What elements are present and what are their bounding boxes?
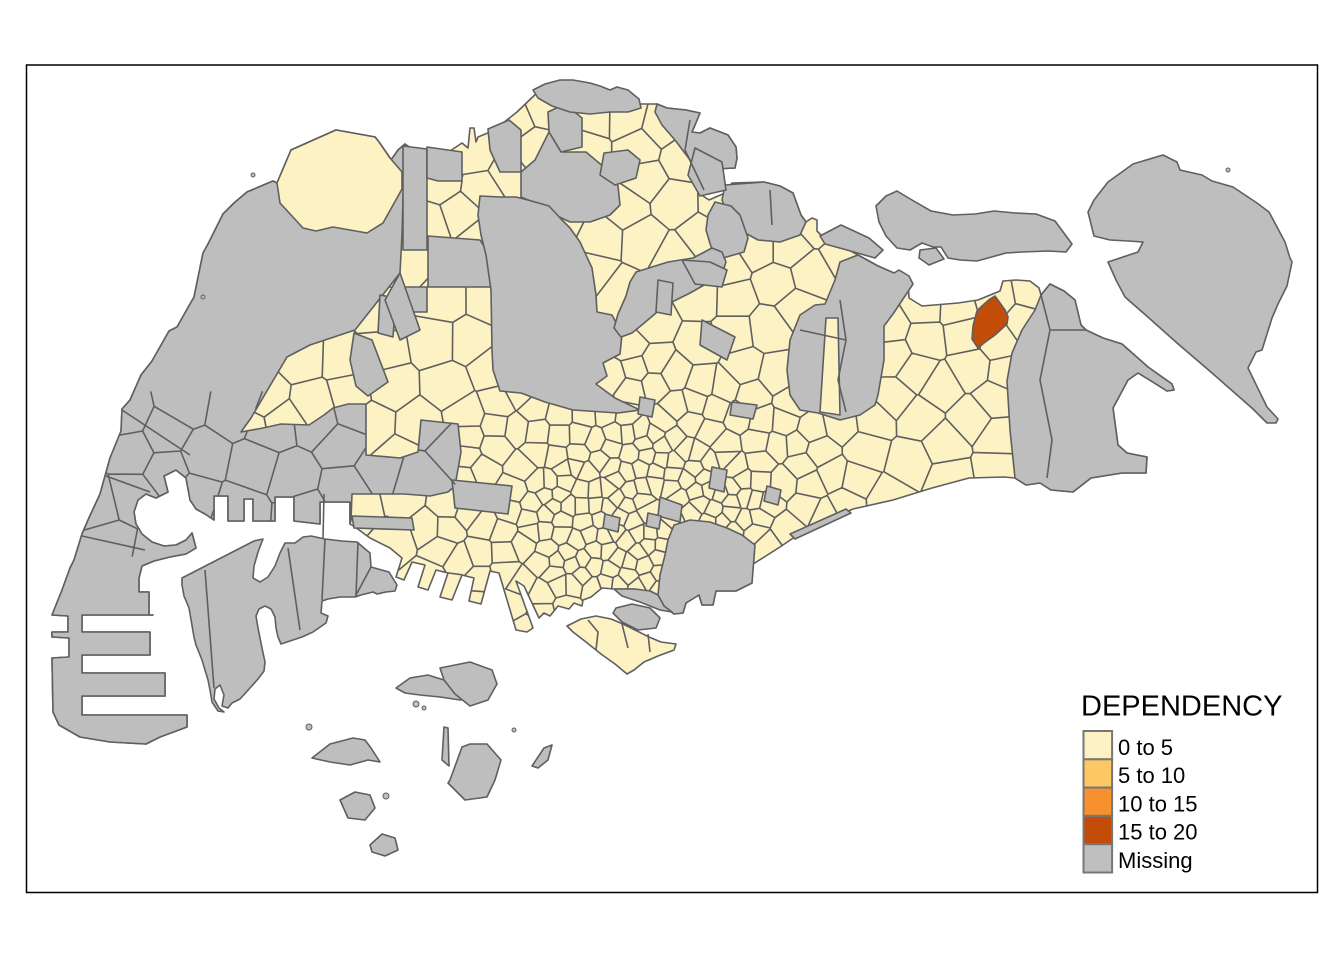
svg-text:0 to 5: 0 to 5	[1118, 735, 1173, 760]
svg-text:5 to 10: 5 to 10	[1118, 763, 1185, 788]
svg-text:Missing: Missing	[1118, 848, 1193, 873]
svg-text:15 to 20: 15 to 20	[1118, 820, 1198, 845]
svg-text:10 to 15: 10 to 15	[1118, 791, 1198, 816]
svg-text:DEPENDENCY: DEPENDENCY	[1081, 690, 1282, 722]
